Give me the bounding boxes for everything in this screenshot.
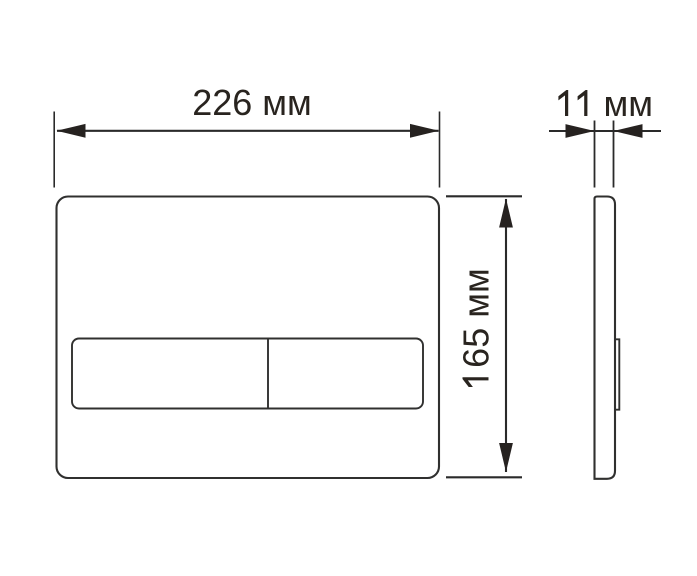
svg-text:226 мм: 226 мм <box>192 82 312 123</box>
svg-text:65 мм: 65 мм <box>456 268 497 368</box>
svg-text:мм: мм <box>604 83 654 124</box>
